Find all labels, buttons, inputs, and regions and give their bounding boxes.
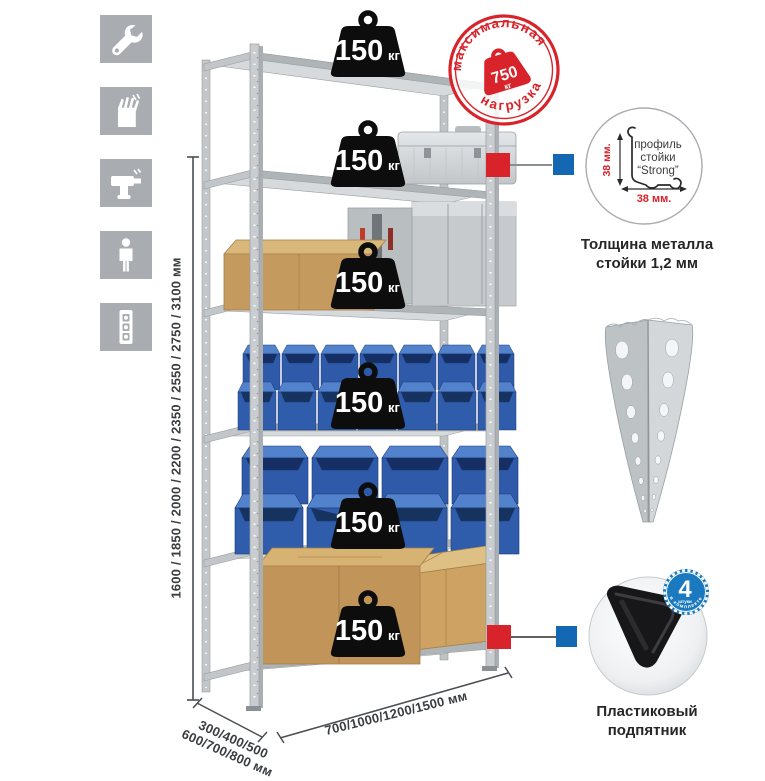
svg-text:150: 150 <box>335 615 383 647</box>
svg-text:“Strong”: “Strong” <box>637 165 679 177</box>
foot-connector <box>487 625 577 649</box>
svg-text:кг: кг <box>388 158 401 173</box>
svg-text:кг: кг <box>388 280 401 295</box>
profile-caption-line1: Толщина металла <box>537 236 757 255</box>
svg-text:150: 150 <box>335 267 383 299</box>
plastic-foot-callout: 4 штуки в комплекте <box>589 569 709 695</box>
svg-text:стойки: стойки <box>640 152 675 164</box>
height-dimension-label: 1600 / 1850 / 2000 / 2200 / 2350 / 2550 … <box>169 257 184 598</box>
quantity-badge: 4 штуки в комплекте <box>663 569 709 615</box>
height-dimension-line <box>187 157 199 700</box>
profile-caption: Толщина металла стойки 1,2 мм <box>537 236 757 274</box>
weight-badge: 150 кг <box>331 123 405 187</box>
foot-caption: Пластиковый подпятник <box>537 703 757 741</box>
svg-text:кг: кг <box>388 520 401 535</box>
foot-caption-line2: подпятник <box>537 722 757 741</box>
profile-caption-line2: стойки 1,2 мм <box>537 255 757 274</box>
angle-post-image <box>605 318 692 522</box>
foot-caption-line1: Пластиковый <box>537 703 757 722</box>
svg-text:38 мм.: 38 мм. <box>601 143 613 176</box>
weight-badge: 150 кг <box>331 13 405 77</box>
svg-text:150: 150 <box>335 145 383 177</box>
svg-text:профиль: профиль <box>634 139 682 151</box>
max-load-stamp: максимальная нагрузка 750 кг <box>436 2 571 138</box>
svg-text:кг: кг <box>388 628 401 643</box>
svg-text:кг: кг <box>388 48 401 63</box>
svg-text:38 мм.: 38 мм. <box>637 193 672 205</box>
svg-text:кг: кг <box>388 400 401 415</box>
svg-text:150: 150 <box>335 35 383 67</box>
profile-connector <box>486 153 574 177</box>
shelving-unit-scene: 150 кг 150 кг 150 кг 150 кг <box>0 0 765 765</box>
post-profile-callout: 38 мм. 38 мм. профиль стойки “Strong” <box>586 108 702 224</box>
svg-text:150: 150 <box>335 387 383 419</box>
product-infographic: 150 кг 150 кг 150 кг 150 кг <box>0 0 765 765</box>
svg-text:150: 150 <box>335 507 383 539</box>
